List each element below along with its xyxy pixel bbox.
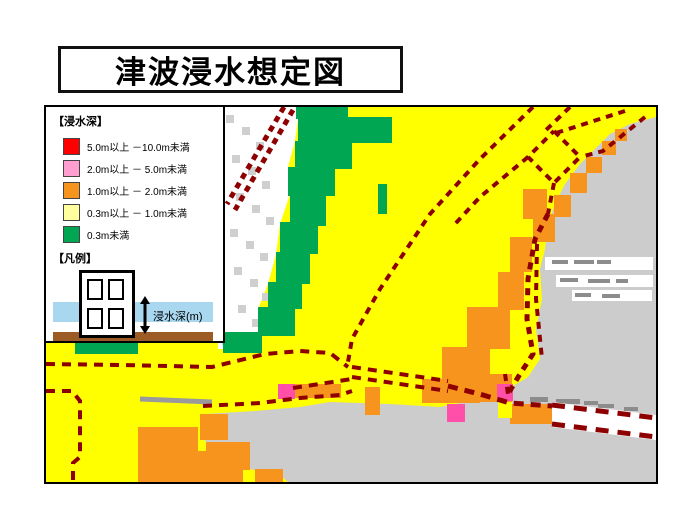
orange-cell bbox=[365, 387, 380, 415]
upland-speckle bbox=[252, 205, 260, 213]
upland-speckle bbox=[266, 217, 274, 225]
green-band bbox=[288, 167, 335, 196]
title-box: 津波浸水想定図 bbox=[58, 46, 403, 93]
legend-row: 2.0m以上 － 5.0m未満 bbox=[53, 157, 223, 179]
map-label-mark bbox=[624, 407, 638, 411]
green-band bbox=[298, 117, 392, 143]
map-legend: 【浸水深】 5.0m以上 －10.0m未満 2.0m以上 － 5.0m未満 1.… bbox=[46, 107, 225, 343]
gray-road bbox=[140, 399, 212, 402]
house-illustration bbox=[79, 270, 135, 338]
orange-cell bbox=[195, 451, 243, 482]
depth-label: 0.3m未満 bbox=[87, 227, 129, 242]
map-label-mark bbox=[588, 279, 610, 283]
map-label-mark bbox=[552, 260, 568, 264]
depth-arrow-label: 浸水深(m) bbox=[153, 308, 203, 324]
depth-swatch-red bbox=[63, 138, 80, 155]
green-band bbox=[268, 282, 302, 309]
map-label-mark bbox=[574, 260, 594, 264]
map-label-mark bbox=[530, 397, 548, 402]
depth-swatch-orange bbox=[63, 182, 80, 199]
house-window bbox=[87, 308, 103, 329]
legend-row: 1.0m以上 － 2.0m未満 bbox=[53, 179, 223, 201]
upland-speckle bbox=[260, 253, 268, 261]
orange-cell bbox=[200, 414, 228, 440]
legend-row: 0.3m未満 bbox=[53, 223, 223, 245]
orange-cell bbox=[498, 272, 524, 310]
map-label-mark bbox=[616, 279, 628, 283]
depth-label: 5.0m以上 －10.0m未満 bbox=[87, 139, 190, 154]
orange-cell bbox=[138, 427, 198, 482]
map-label-mark bbox=[560, 278, 578, 282]
depth-swatch-pink bbox=[63, 160, 80, 177]
depth-label: 1.0m以上 － 2.0m未満 bbox=[87, 183, 187, 198]
green-band bbox=[258, 307, 295, 336]
house-window bbox=[108, 308, 124, 329]
orange-cell bbox=[570, 173, 587, 193]
orange-cell bbox=[467, 307, 510, 349]
upland-speckle bbox=[230, 229, 238, 237]
depth-swatch-green bbox=[63, 226, 80, 243]
upland-speckle bbox=[226, 115, 234, 123]
upland-speckle bbox=[262, 181, 270, 189]
green-band bbox=[276, 252, 310, 284]
upland-speckle bbox=[234, 267, 242, 275]
legend-depth-title: 【浸水深】 bbox=[53, 113, 223, 129]
house-window bbox=[108, 279, 124, 300]
upland-speckle bbox=[242, 127, 250, 135]
orange-cell bbox=[554, 195, 571, 217]
tsunami-map: 【浸水深】 5.0m以上 －10.0m未満 2.0m以上 － 5.0m未満 1.… bbox=[44, 105, 658, 484]
upland-speckle bbox=[246, 241, 254, 249]
page: 津波浸水想定図 【浸水深】 5.0m以上 －10.0m未満 2.0m以上 － 5… bbox=[0, 0, 700, 525]
legend-row: 0.3m以上 － 1.0m未満 bbox=[53, 201, 223, 223]
map-label-mark bbox=[597, 260, 611, 264]
legend-row: 5.0m以上 －10.0m未満 bbox=[53, 135, 223, 157]
depth-diagram: 浸水深(m) bbox=[53, 268, 213, 343]
legend-example-title: 【凡例】 bbox=[53, 250, 223, 266]
upland-speckle bbox=[232, 155, 240, 163]
green-band bbox=[290, 194, 326, 226]
depth-swatch-yellow bbox=[63, 204, 80, 221]
orange-cell bbox=[586, 157, 602, 173]
pink-cell bbox=[278, 384, 295, 399]
yellow-cell bbox=[498, 402, 512, 418]
orange-cell bbox=[255, 469, 283, 482]
house-window bbox=[87, 279, 103, 300]
green-patch bbox=[378, 184, 387, 214]
map-label-mark bbox=[598, 404, 614, 408]
green-patch bbox=[223, 332, 262, 353]
map-label-mark bbox=[602, 294, 620, 298]
page-title: 津波浸水想定図 bbox=[115, 47, 346, 92]
green-band bbox=[295, 141, 352, 169]
upland-speckle bbox=[250, 279, 258, 287]
upland-speckle bbox=[238, 305, 246, 313]
map-label-mark bbox=[575, 293, 591, 297]
pink-cell bbox=[447, 404, 465, 422]
map-label-mark bbox=[584, 401, 598, 405]
depth-label: 2.0m以上 － 5.0m未満 bbox=[87, 161, 187, 176]
depth-label: 0.3m以上 － 1.0m未満 bbox=[87, 205, 187, 220]
depth-arrow-icon bbox=[139, 296, 151, 334]
green-band bbox=[280, 222, 318, 254]
